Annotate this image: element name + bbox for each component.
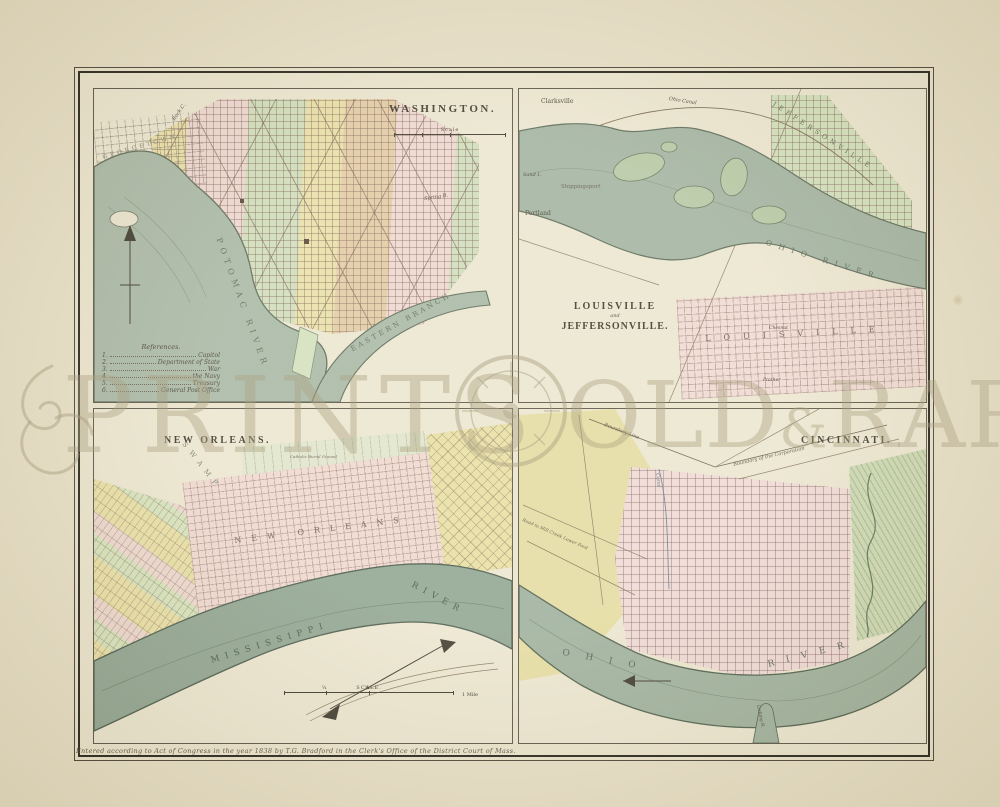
cincinnati-map-svg <box>519 409 926 743</box>
shippingsport-label: Shippingsport <box>561 185 600 191</box>
scale-unit: 1 Mile <box>462 692 478 698</box>
neworleans-scalebar: SCALE. ¼ ½ 1 Mile <box>284 685 454 693</box>
presidents-house-marker <box>240 199 244 203</box>
sand-island-label: Sand I. <box>523 173 541 178</box>
panel-neworleans: NEW ORLEANS. SWAMP Catholic Burial Groun… <box>93 408 513 744</box>
paper-stain <box>952 294 964 306</box>
louisville-title-line1: LOUISVILLE <box>549 301 681 312</box>
washington-title: WASHINGTON. <box>389 103 496 115</box>
portland-label: Portland <box>525 211 551 217</box>
washington-scalebar: Scale Mi. <box>394 127 506 135</box>
eastern-branch-shape <box>312 291 490 402</box>
panel-cincinnati: CINCINNATI. Boundary Line Boundary of th… <box>518 408 927 744</box>
canal-label: Canal <box>654 473 661 488</box>
chesnut-street-label: Chesnut <box>769 327 788 332</box>
legend-item: 6. General Post Office <box>102 387 220 394</box>
scale-quarter: ¼ <box>322 686 326 691</box>
plate-frame: WASHINGTON. Scale Mi. References. 1. Cap… <box>74 67 934 761</box>
compass-arrow-icon <box>322 639 456 720</box>
louisville-title-line2: and <box>549 314 681 319</box>
legend-title: References. <box>102 343 220 351</box>
cincinnati-title: CINCINNATI. <box>801 435 892 446</box>
legend-item: 4. the Navy <box>102 373 220 380</box>
capitol-marker <box>304 239 309 244</box>
deer-creek-line <box>867 473 876 637</box>
scale-half: ½ <box>365 686 369 691</box>
louisville-map-svg <box>519 89 926 402</box>
ohio-river-shape <box>519 124 926 289</box>
legend-item: 1. Capitol <box>102 352 220 359</box>
panel-louisville: LOUISVILLE and JEFFERSONVILLE. Clarksvil… <box>518 88 927 403</box>
scale-rule: ¼ ½ 1 Mile <box>284 692 454 693</box>
washington-legend: References. 1. Capitol 2. Department of … <box>102 343 220 394</box>
legend-item: 2. Department of State <box>102 359 220 366</box>
map-sheet: WASHINGTON. Scale Mi. References. 1. Cap… <box>0 0 1000 807</box>
louisville-title-block: LOUISVILLE and JEFFERSONVILLE. <box>549 301 681 332</box>
prather-street-label: Prather <box>763 379 780 384</box>
legend-item: 3. War <box>102 366 220 373</box>
plate-inner-rule: WASHINGTON. Scale Mi. References. 1. Cap… <box>78 71 930 757</box>
legend-item: 5. Treasury <box>102 380 220 387</box>
clarksville-label: Clarksville <box>541 99 573 105</box>
burial-ground-label: Catholic Burial Ground <box>290 455 337 459</box>
analostan-island <box>110 211 138 227</box>
scale-rule: Mi. <box>394 134 506 135</box>
panel-washington: WASHINGTON. Scale Mi. References. 1. Cap… <box>93 88 513 403</box>
copyright-imprint: Entered according to Act of Congress in … <box>76 747 516 755</box>
louisville-title-line3: JEFFERSONVILLE. <box>549 321 681 332</box>
